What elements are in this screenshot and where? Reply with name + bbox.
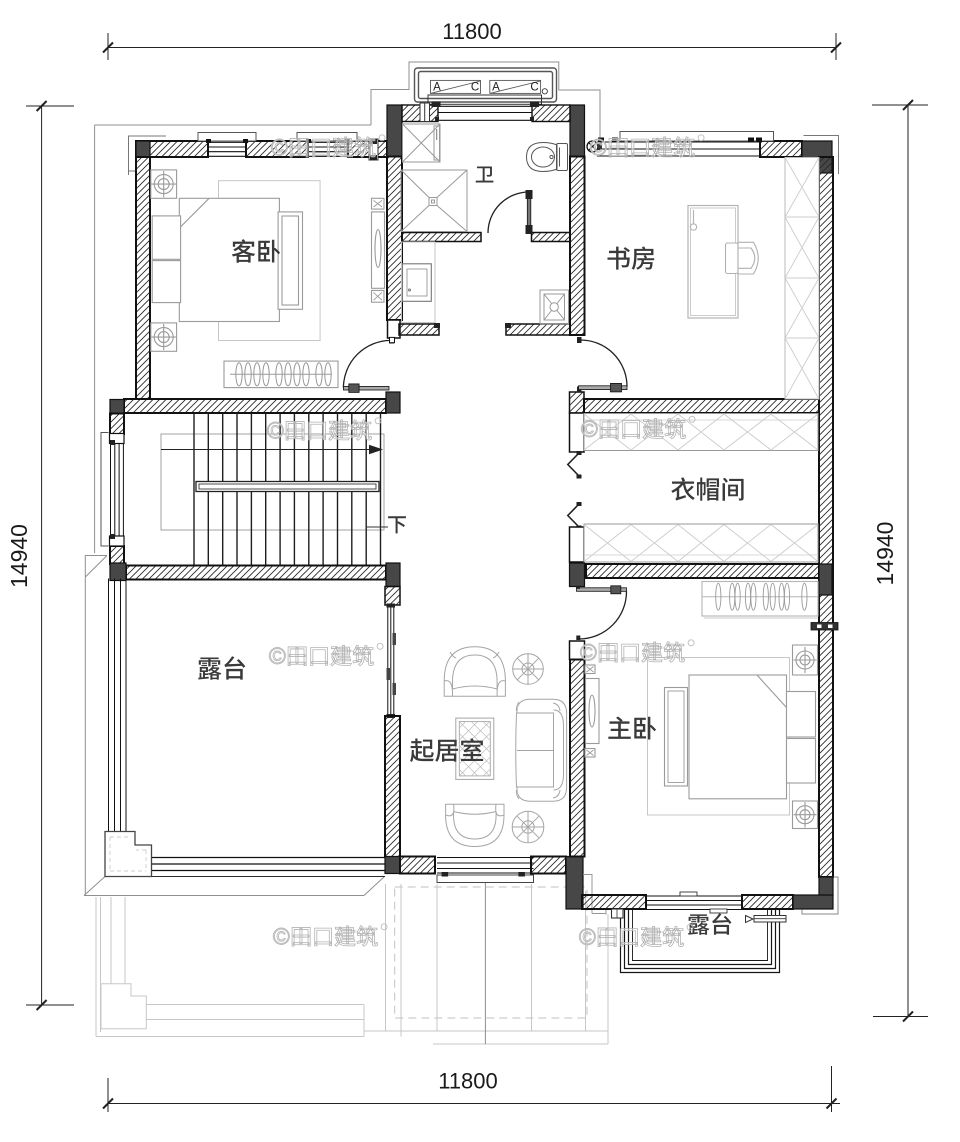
svg-text:11800: 11800 [438,1069,498,1094]
svg-text:©: © [269,643,286,669]
svg-text:©: © [267,418,284,444]
svg-text:©: © [579,924,596,950]
svg-text:©: © [271,135,288,161]
svg-text:©: © [580,640,597,666]
svg-text:C: C [530,82,538,94]
svg-text:C: C [471,82,479,94]
svg-text:©: © [581,416,598,442]
svg-text:A: A [492,82,500,94]
svg-text:14940: 14940 [872,522,898,586]
svg-text:11800: 11800 [442,19,502,44]
svg-text:©: © [273,924,290,950]
svg-text:14940: 14940 [6,524,32,588]
svg-text:A: A [433,82,441,94]
svg-text:©: © [590,135,607,161]
